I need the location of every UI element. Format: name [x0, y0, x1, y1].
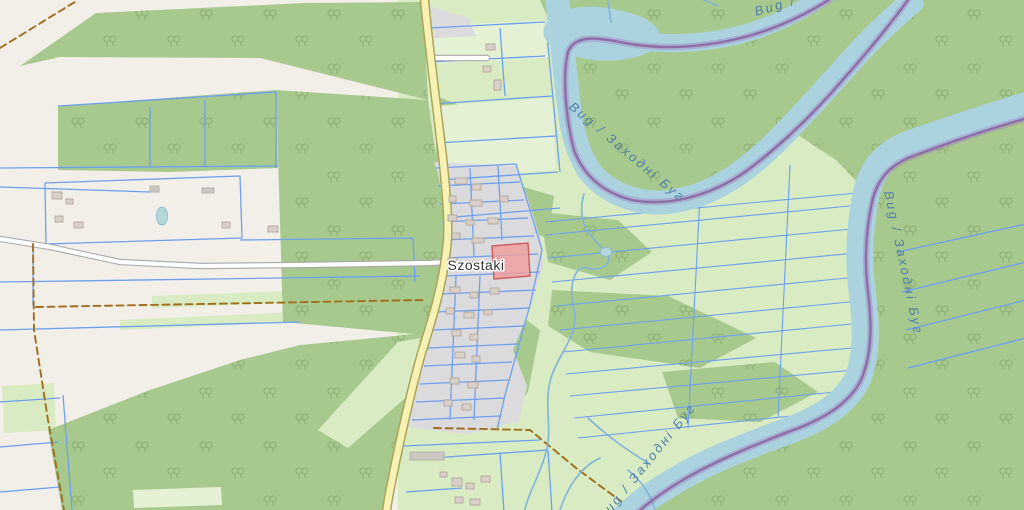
pond [157, 207, 168, 225]
map-canvas[interactable]: Szostaki Bug / Заходні Буг Bug / Заходні… [0, 0, 1024, 510]
place-label: Szostaki [448, 257, 505, 273]
clearing [133, 487, 222, 508]
map-svg: Szostaki Bug / Заходні Буг Bug / Заходні… [0, 0, 1024, 510]
